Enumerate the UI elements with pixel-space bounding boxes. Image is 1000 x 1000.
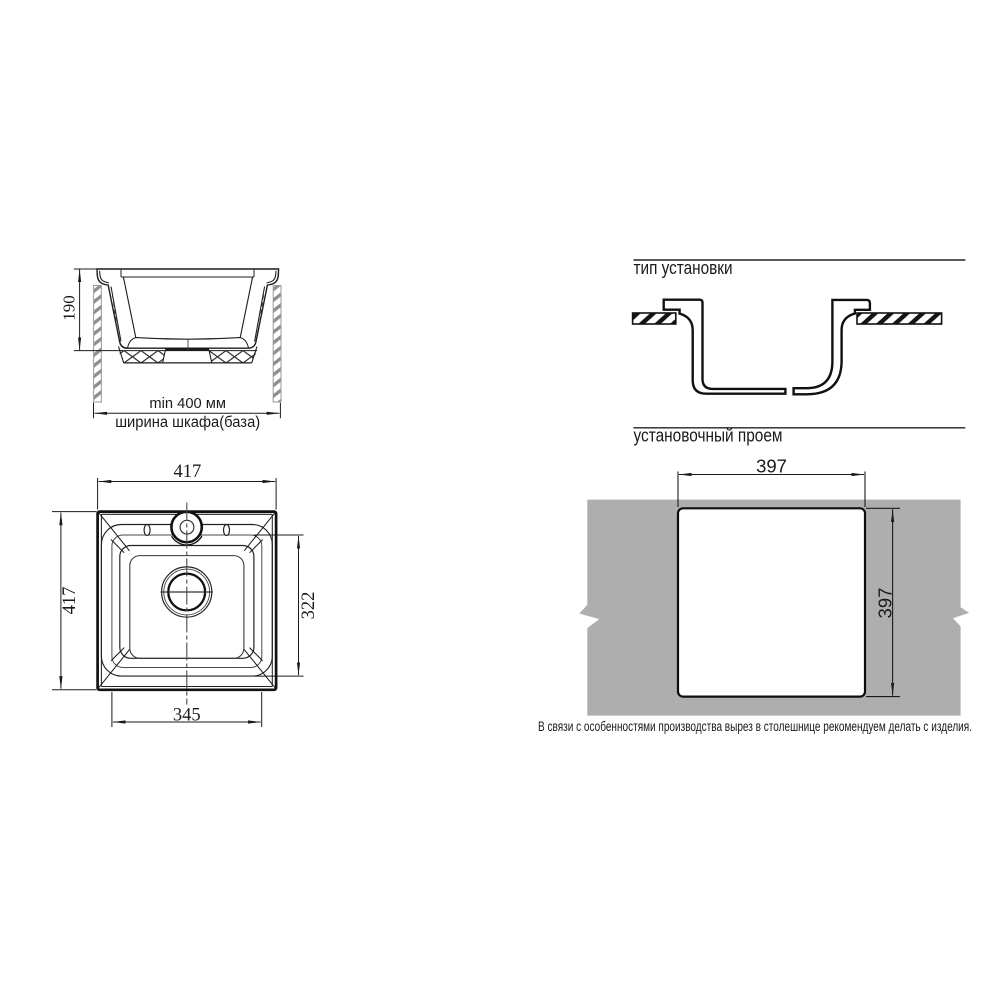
svg-text:345: 345 — [173, 705, 201, 725]
svg-text:min 400 мм: min 400 мм — [149, 396, 226, 412]
svg-text:322: 322 — [299, 592, 319, 620]
svg-text:417: 417 — [174, 462, 202, 482]
svg-text:В связи с особенностями произв: В связи с особенностями производства выр… — [538, 719, 972, 734]
svg-text:установочный проем: установочный проем — [634, 426, 783, 446]
svg-text:397: 397 — [875, 588, 896, 619]
svg-text:417: 417 — [60, 587, 80, 615]
svg-text:тип установки: тип установки — [634, 258, 733, 278]
svg-text:397: 397 — [756, 456, 787, 477]
svg-text:ширина шкафа(база): ширина шкафа(база) — [115, 414, 260, 431]
svg-text:190: 190 — [60, 295, 79, 321]
